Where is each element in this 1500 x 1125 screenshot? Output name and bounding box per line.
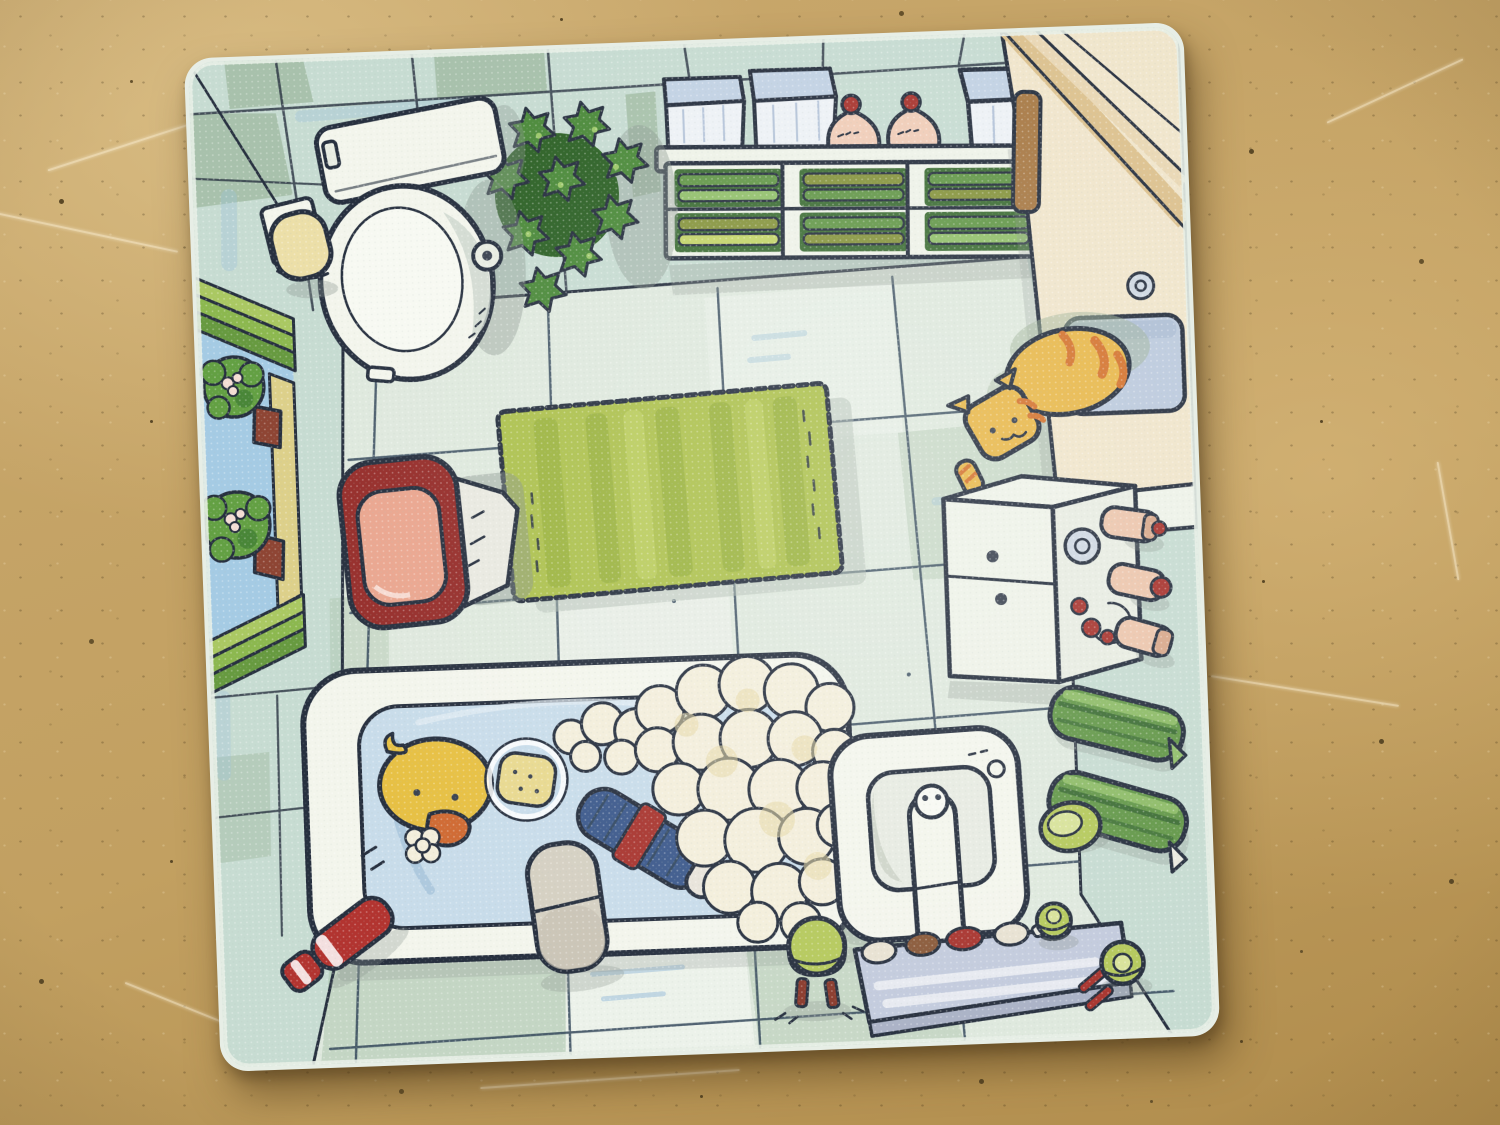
bathroom-game-tile xyxy=(184,22,1220,1072)
bathroom-illustration xyxy=(184,22,1220,1072)
table-scratch xyxy=(1437,462,1460,581)
table-scratch xyxy=(0,209,178,253)
photo-of-game-tile: { "scene": { "type": "photograph", "subj… xyxy=(0,0,1500,1125)
table-scratch xyxy=(1211,675,1399,707)
tile-face xyxy=(184,22,1220,1072)
table-specks xyxy=(0,0,3,3)
table-scratch xyxy=(480,1069,740,1089)
table-scratch xyxy=(1327,58,1464,123)
gloss-sheen xyxy=(184,22,1220,1072)
